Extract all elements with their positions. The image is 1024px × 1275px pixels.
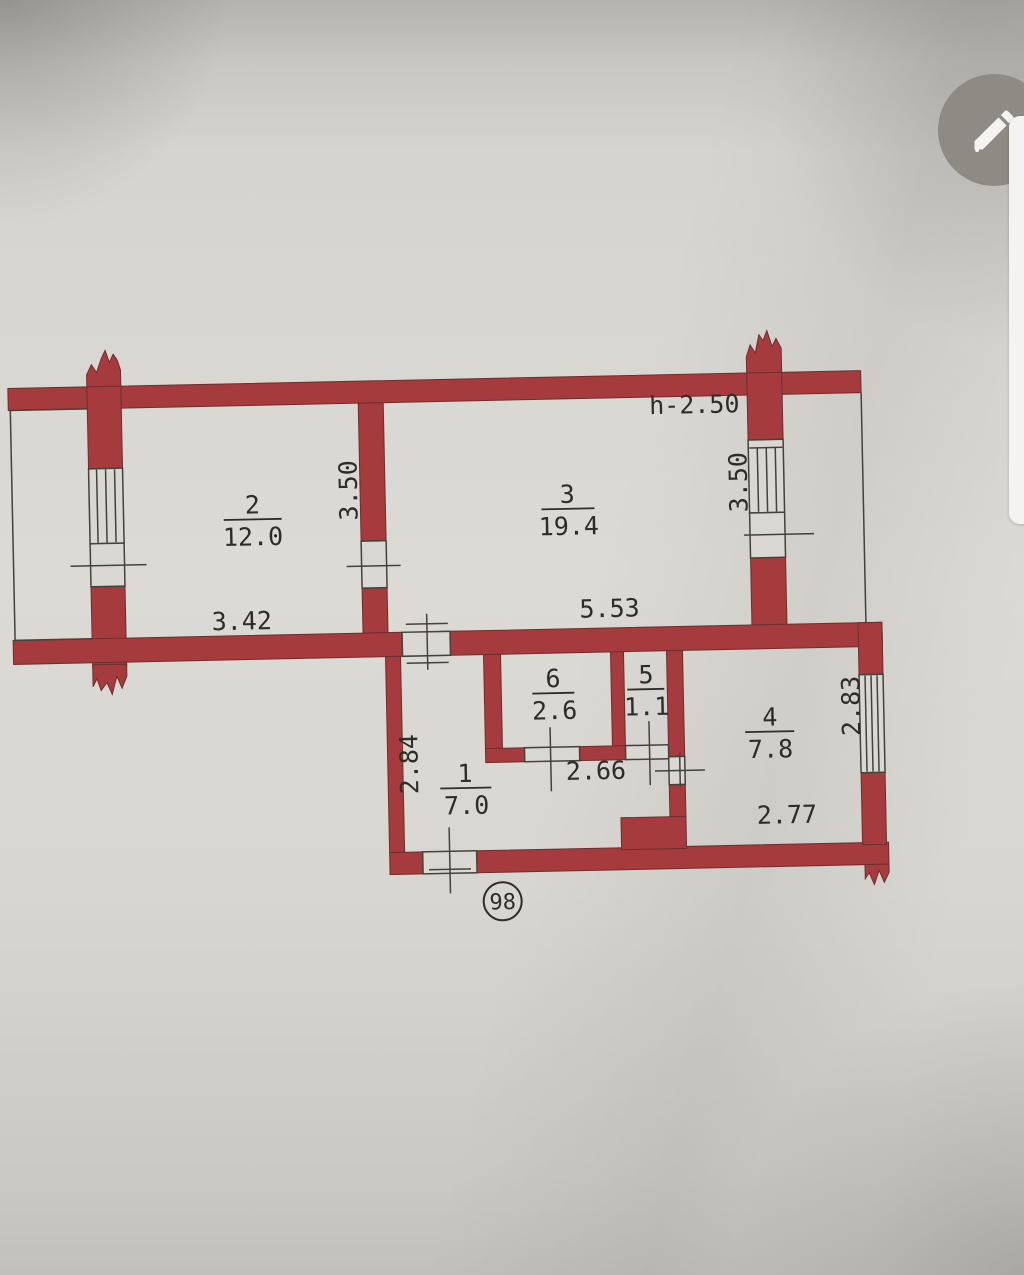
door-room5	[625, 721, 669, 786]
room-4-area: 7.8	[748, 734, 794, 764]
room-3-area: 19.4	[538, 511, 599, 541]
window-symbol-stairwell	[748, 439, 785, 513]
room-5-area: 1.1	[624, 692, 670, 722]
apartment-number: 98	[489, 890, 516, 916]
door-room2-balcony	[70, 543, 147, 588]
dim-room2-width: 3.42	[211, 606, 272, 636]
dim-room4-width: 2.77	[757, 800, 818, 830]
room-1-number: 1	[457, 759, 473, 788]
room-6-number: 6	[545, 664, 561, 693]
room-2-label: 2 12.0	[222, 490, 283, 552]
dim-room3-width: 5.53	[579, 593, 640, 623]
door-room2-room3	[346, 540, 401, 588]
door-hall-room2area	[402, 613, 451, 670]
dim-room3-depth: 3.50	[723, 452, 753, 513]
window-symbol-left	[89, 468, 125, 544]
apartment-number-badge: 98	[483, 882, 522, 921]
room-4-number: 4	[762, 702, 778, 731]
room-6-label: 6 2.6	[531, 664, 577, 726]
room-1-area: 7.0	[444, 791, 490, 821]
room-3-number: 3	[559, 480, 575, 509]
photo-viewer: 2 12.0 3 19.4 6 2.6 5 1.1 4 7.8 1 7.0	[0, 0, 1024, 1275]
side-panel-handle[interactable]	[1009, 116, 1024, 524]
dim-hall-depth: 2.84	[394, 734, 424, 795]
floor-plan: 2 12.0 3 19.4 6 2.6 5 1.1 4 7.8 1 7.0	[0, 0, 1024, 1275]
dim-room2-depth: 3.50	[333, 460, 363, 521]
dim-hall-width: 2.66	[566, 756, 627, 786]
room-5-number: 5	[638, 660, 654, 689]
room-2-number: 2	[244, 490, 260, 519]
room-1-label: 1 7.0	[440, 758, 492, 820]
balcony-outline	[9, 409, 92, 642]
room-3-label: 3 19.4	[538, 479, 599, 541]
room-4-label: 4 7.8	[745, 702, 795, 764]
door-room3-balcony	[744, 512, 815, 558]
room-5-label: 5 1.1	[623, 660, 669, 722]
room-6-area: 2.6	[532, 696, 578, 726]
room-2-area: 12.0	[223, 522, 284, 552]
ceiling-height-note: h-2.50	[649, 389, 740, 420]
dim-room4-depth: 2.83	[836, 676, 866, 737]
stairwell-outline	[861, 393, 866, 623]
door-entrance	[422, 827, 477, 894]
